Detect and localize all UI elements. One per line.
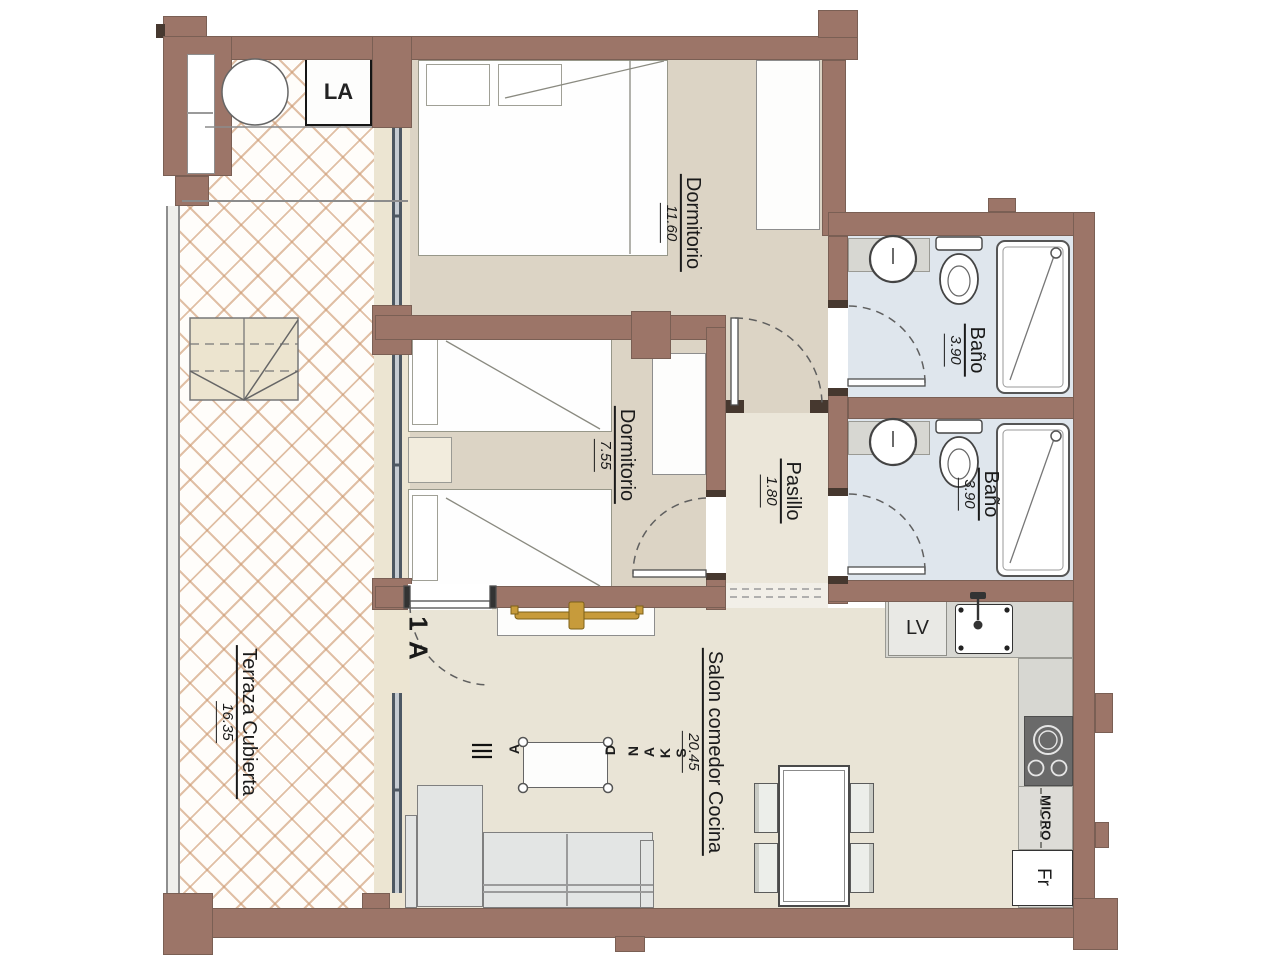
watermark-glyph: D <box>602 745 618 755</box>
dining-chair <box>850 783 874 833</box>
dining-chair <box>850 843 874 893</box>
door-gap-bano-1 <box>828 308 848 388</box>
wall-top <box>163 36 858 60</box>
dining-chair <box>754 843 778 893</box>
single-bed-2 <box>408 489 612 588</box>
watermark-glyph: A <box>641 747 657 757</box>
wardrobe-dormitorio-2 <box>652 353 706 475</box>
terrace-railing <box>166 206 180 908</box>
nightstand <box>408 437 452 483</box>
room-area: 11.60 <box>660 203 680 243</box>
door-jamb <box>828 488 848 496</box>
window-dormitorio-1 <box>392 128 402 305</box>
wall-dorm2-right <box>706 327 726 498</box>
wall-stub <box>726 400 744 413</box>
watermark-glyph: A <box>506 744 522 754</box>
single-bed-1 <box>408 333 612 432</box>
room-name: Terraza Cubierta <box>236 645 260 799</box>
sideboard <box>497 606 655 636</box>
room-name: Baño <box>964 324 988 377</box>
wall-bath-mid <box>848 397 1095 419</box>
washing-machine-label: LA <box>307 60 370 124</box>
dining-table-inner-line <box>783 770 845 902</box>
wall-segment <box>1095 693 1113 733</box>
watermark-glyph: S <box>673 748 689 757</box>
washing-machine-box: LA <box>305 58 372 126</box>
wall-between-bedrooms <box>375 315 726 340</box>
sofa-seats <box>483 832 653 908</box>
watermark-glyph: K <box>657 748 673 758</box>
wall-segment <box>175 176 209 206</box>
wall-bath-top <box>828 212 1095 236</box>
sofa-seat-divider <box>566 834 568 906</box>
pillow <box>412 339 438 425</box>
wall-segment <box>615 936 645 952</box>
room-name: Baño <box>978 468 1002 521</box>
wall-corner-br <box>1073 898 1118 950</box>
pillow <box>426 64 490 106</box>
door-gap-dormitorio-2 <box>706 496 726 574</box>
dining-table <box>778 765 850 907</box>
bath-counter-1 <box>848 238 930 272</box>
door-jamb <box>828 576 848 584</box>
wall-salon-top <box>375 586 410 608</box>
watermark-glyph: N <box>625 746 641 756</box>
room-name: Dormitorio <box>614 406 638 504</box>
wall-bottom <box>163 908 1095 938</box>
pillow <box>498 64 562 106</box>
room-area: 1.80 <box>760 474 780 507</box>
pillow <box>412 495 438 581</box>
fridge-text: Fr <box>1032 868 1054 886</box>
wall-stub <box>810 400 828 413</box>
room-area: 7.55 <box>594 438 614 471</box>
room-area: 3.90 <box>944 333 964 366</box>
door-gap-bano-2 <box>828 496 848 576</box>
room-name: Pasillo <box>780 459 804 524</box>
bath-counter-2 <box>848 421 930 455</box>
cooktop <box>1024 716 1073 786</box>
sofa-arm-right <box>640 840 654 908</box>
wall-dorm1-right <box>822 60 846 236</box>
wall-segment <box>1095 822 1109 848</box>
wall-right <box>1073 212 1095 912</box>
wall-salon-top <box>492 586 726 608</box>
door-gap-entrance <box>408 584 492 610</box>
wall-pier <box>372 36 412 128</box>
room-name: Dormitorio <box>680 174 704 272</box>
window-salon <box>392 693 402 893</box>
unit-label-text: 1 A <box>403 616 434 662</box>
dishwasher-label: LV <box>889 601 946 655</box>
sofa-chaise <box>417 785 483 907</box>
coffee-table <box>523 742 608 788</box>
room-name: Salon comedor Cocina <box>702 648 726 856</box>
wall-segment <box>163 16 207 38</box>
kitchen-sink <box>955 604 1013 654</box>
sofa-front-line <box>483 891 653 893</box>
wall-window-tick <box>187 112 213 114</box>
sofa-arm-left <box>405 815 417 908</box>
window-dormitorio-2 <box>392 355 402 578</box>
door-jamb <box>706 573 726 580</box>
door-jamb <box>828 388 848 396</box>
wall-segment <box>988 198 1016 212</box>
wall-segment <box>818 10 858 38</box>
room-area: 3.90 <box>958 477 978 510</box>
microwave-text: MICRO <box>1039 795 1054 841</box>
wall-bath-left <box>828 388 848 496</box>
wall-corner-bl <box>163 893 213 955</box>
sofa-front-line <box>483 884 653 886</box>
dining-chair <box>754 783 778 833</box>
wall-bath-left <box>828 236 848 308</box>
wall-window-slot <box>187 54 215 174</box>
dishwasher-box: LV <box>888 600 947 656</box>
door-jamb <box>706 490 726 497</box>
wardrobe-dormitorio-1 <box>756 60 820 230</box>
wall-bath-bottom <box>828 580 1095 602</box>
room-floor-vestibule <box>726 212 828 414</box>
pasillo-threshold <box>726 583 828 608</box>
room-area: 16.35 <box>216 701 236 743</box>
wall-column <box>631 311 671 359</box>
door-jamb <box>828 300 848 308</box>
